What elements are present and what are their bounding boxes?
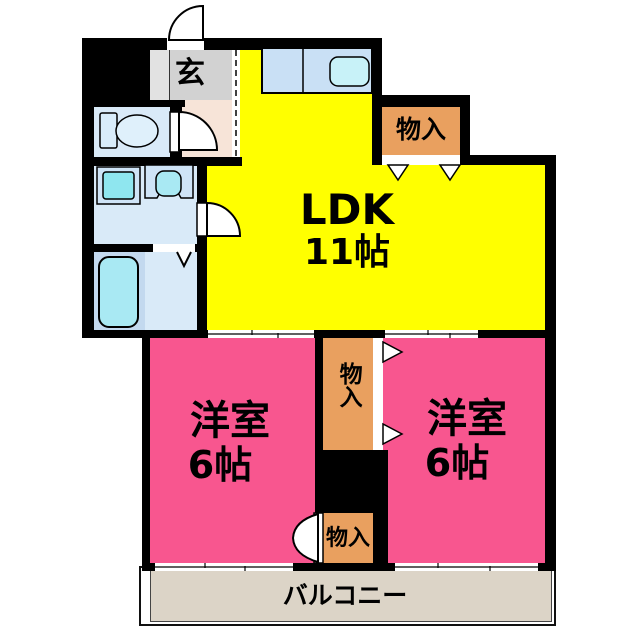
balcony-label: バルコニー — [230, 583, 460, 609]
ldk-label: LDK — [262, 188, 432, 232]
bedroom-right-label: 洋室 — [387, 398, 547, 440]
closet-mid-label: 物入 — [336, 362, 360, 408]
closet-top-door-markers — [388, 165, 460, 180]
toilet-icon — [100, 113, 158, 148]
kitchen-sink-icon — [330, 57, 369, 86]
washing-machine-icon — [97, 167, 140, 204]
bathroom-door-icon — [177, 252, 191, 266]
closet-top-label: 物入 — [386, 117, 456, 143]
bathtub-icon — [99, 257, 138, 327]
closet-bottom-label: 物入 — [324, 527, 372, 550]
washroom-door-icon — [197, 203, 240, 236]
floor-plan: 玄 LDK 11帖 物入 洋室 6帖 物入 洋室 6帖 物入 バルコニー — [0, 0, 640, 640]
entrance-door-icon — [169, 6, 203, 40]
bedroom-right-size-label: 6帖 — [377, 444, 537, 484]
bedroom-left-label: 洋室 — [150, 400, 310, 442]
toilet-door-icon — [170, 112, 217, 152]
genkan-label: 玄 — [164, 58, 216, 90]
closet-bottom-folding-door-icon — [293, 513, 323, 563]
bedroom-left-size-label: 6帖 — [140, 446, 300, 486]
kitchen-counter — [262, 48, 372, 93]
vanity-sink-icon — [145, 165, 193, 198]
ldk-size-label: 11帖 — [262, 234, 432, 272]
plan-symbols — [0, 0, 640, 640]
